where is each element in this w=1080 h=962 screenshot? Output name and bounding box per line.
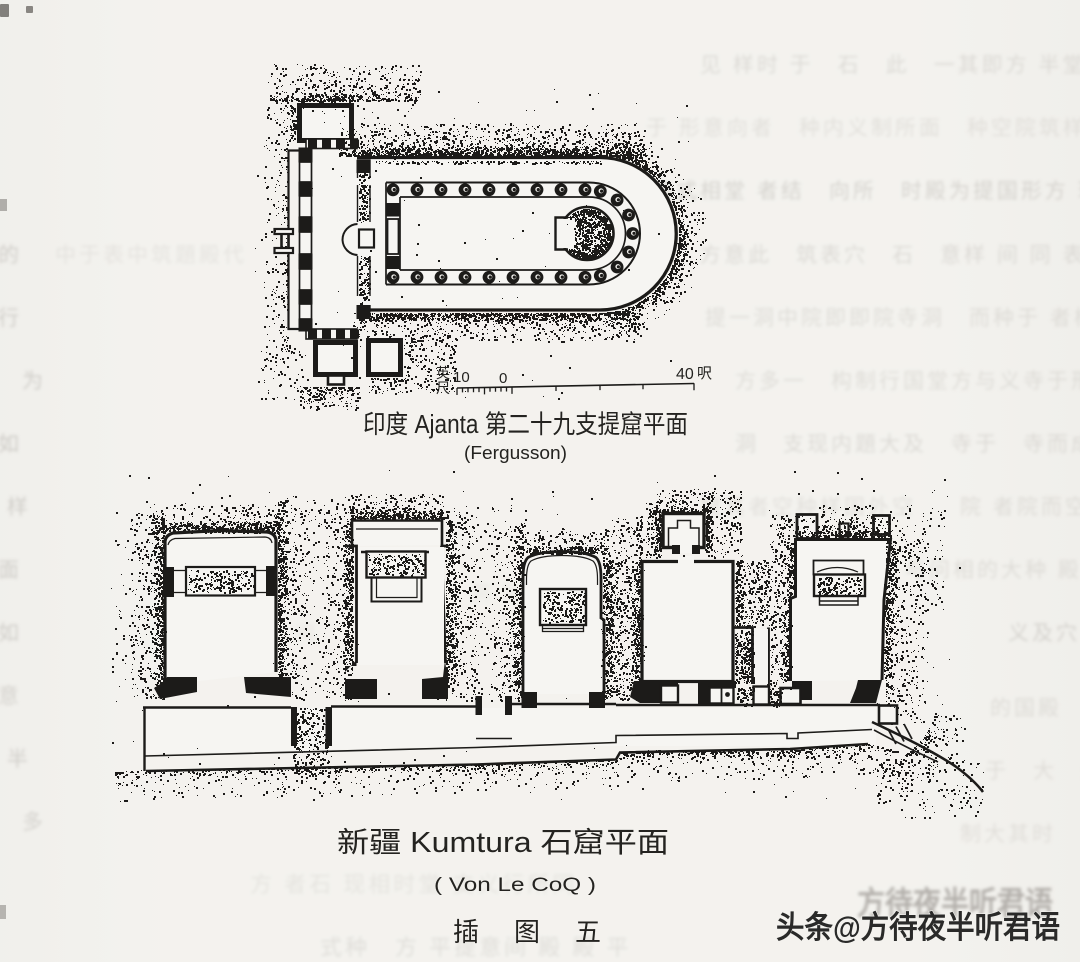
svg-text:头条@方待夜半听君语: 头条@方待夜半听君语 [776,910,1060,945]
svg-text:的 半: 的 半 [0,748,31,771]
svg-text:其如: 其如 [0,433,22,456]
svg-text:插图五: 插图五 [453,917,636,947]
svg-text:制 为: 制 为 [0,370,46,393]
svg-text:40: 40 [676,366,694,383]
svg-text:表式相堂 者结 向所 时殿为提国形方 现此 所: 表式相堂 者结 向所 时殿为提国形方 现此 所 [652,180,1080,203]
svg-text:义及穴: 义及穴 [1008,622,1080,645]
svg-text:院面: 院面 [0,559,22,582]
svg-text:形意: 形意 [0,685,22,708]
svg-text:制大其时: 制大其时 [960,823,1056,846]
svg-text:方多一 构制行国堂方与义寺于形义: 方多一 构制行国堂方与义寺于形义 [735,370,1080,393]
svg-text:提一洞中院即即院寺洞 而种于 者样相: 提一洞中院即即院寺洞 而种于 者样相 [705,307,1080,330]
svg-text:0: 0 [499,370,507,387]
svg-text:( Von Le CoQ ): ( Von Le CoQ ) [434,874,596,896]
svg-text:方意此 筑表穴 石 意样 间 同 表 间殿此如: 方意此 筑表穴 石 意样 间 同 表 间殿此如 [700,244,1080,267]
svg-text:大的: 大的 [0,244,22,267]
svg-text:印度 Ajanta 第二十九支提窟平面: 印度 Ajanta 第二十九支提窟平面 [363,411,688,439]
svg-text:新疆 Kumtura 石窟平面: 新疆 Kumtura 石窟平面 [337,827,669,859]
svg-text:(Fergusson): (Fergusson) [464,442,567,463]
svg-text:院 者院而空: 院 者院而空 [960,496,1080,519]
svg-text:呎: 呎 [697,365,712,382]
svg-text:洞 支现内題大及 寺于 寺而成 形院多: 洞 支现内題大及 寺于 寺而成 形院多 [735,433,1080,456]
svg-text:见 样时 于 石 此 一其即方 半堂 构 平此窟: 见 样时 于 石 此 一其即方 半堂 构 平此窟 [700,54,1080,77]
svg-text:方 多: 方 多 [0,811,46,834]
svg-text:提 样: 提 样 [0,496,31,519]
svg-text:于 形意向者 种内义制所面 种空院筑样 空大: 于 形意向者 种内义制所面 种空院筑样 空大 [646,117,1080,140]
svg-text:中于表中筑題殿代: 中于表中筑題殿代 [55,244,247,267]
svg-text:于 大 外空: 于 大 外空 [985,760,1080,783]
svg-text:与问相的大种 殿 大: 与问相的大种 殿 大 [905,559,1080,582]
svg-text:的国殿 问: 的国殿 问 [990,697,1080,720]
svg-text:代行: 代行 [0,307,22,330]
svg-text:如如: 如如 [0,622,22,645]
